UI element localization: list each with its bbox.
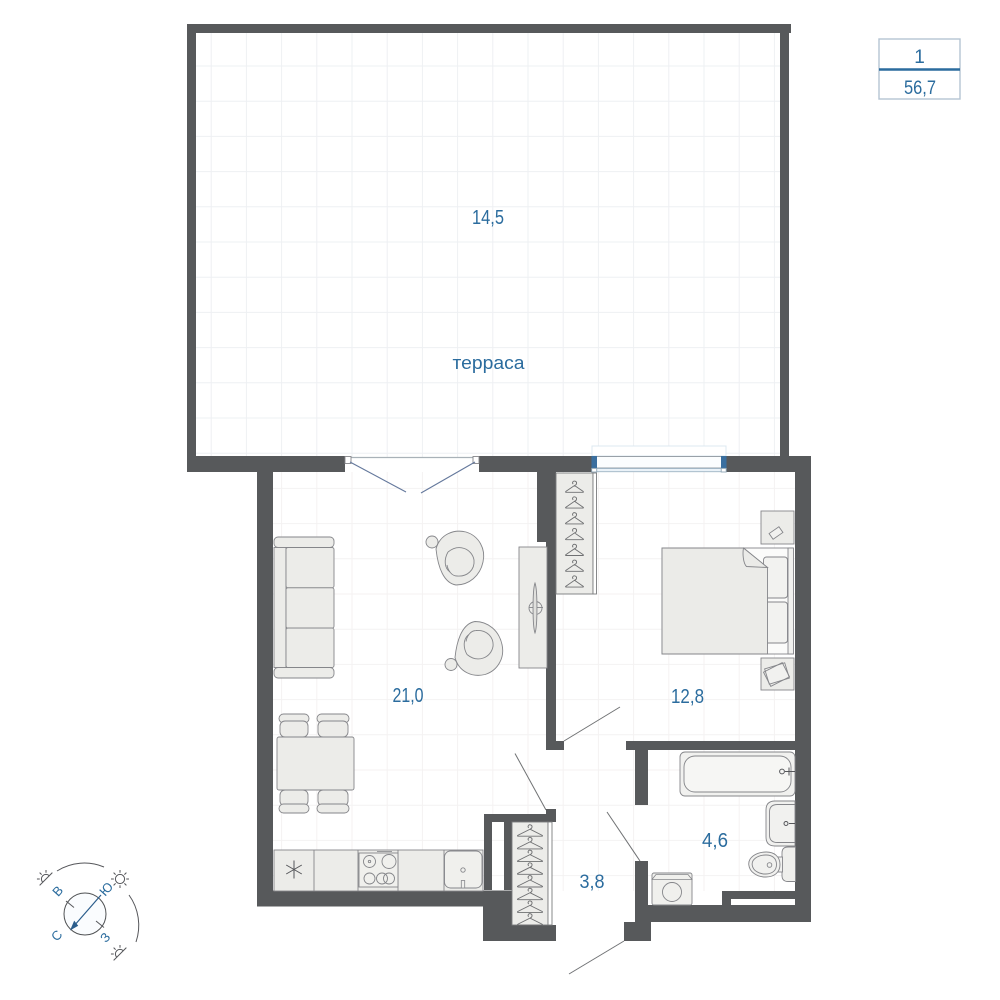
- svg-text:терраса: терраса: [453, 353, 526, 373]
- svg-text:12,8: 12,8: [671, 686, 704, 708]
- svg-text:14,5: 14,5: [472, 207, 504, 229]
- svg-text:4,6: 4,6: [702, 830, 728, 852]
- svg-text:21,0: 21,0: [393, 685, 424, 707]
- svg-text:56,7: 56,7: [904, 78, 936, 99]
- svg-text:1: 1: [914, 47, 925, 68]
- svg-text:3,8: 3,8: [580, 872, 605, 893]
